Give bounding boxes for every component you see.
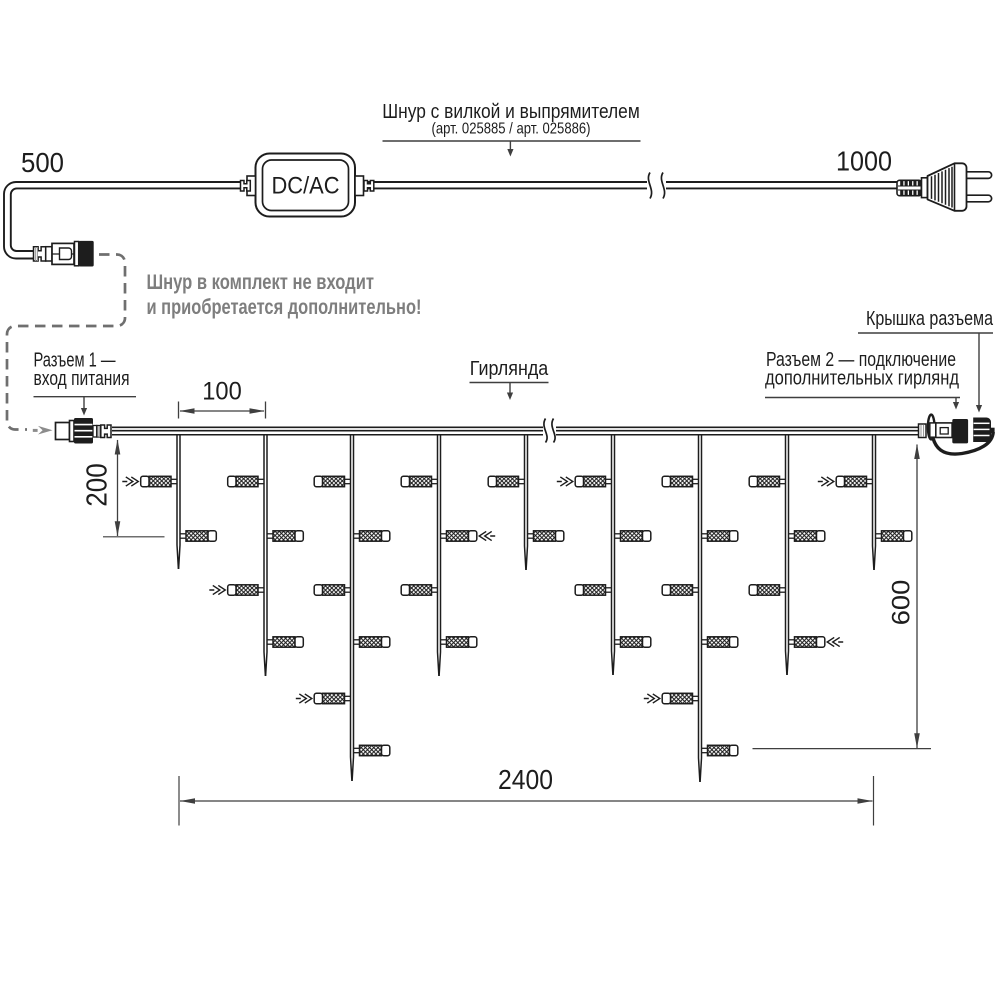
svg-text:100: 100 (202, 378, 242, 406)
svg-text:DC/AC: DC/AC (272, 173, 340, 200)
svg-text:вход питания: вход питания (34, 367, 130, 390)
svg-text:(арт. 025885 / арт. 025886): (арт. 025885 / арт. 025886) (432, 121, 591, 138)
svg-text:500: 500 (21, 147, 64, 178)
svg-text:600: 600 (888, 580, 916, 626)
svg-text:Гирлянда: Гирлянда (470, 357, 549, 380)
svg-text:2400: 2400 (498, 764, 553, 795)
svg-text:Шнур в комплект не входит: Шнур в комплект не входит (147, 271, 375, 294)
svg-text:200: 200 (82, 463, 114, 507)
svg-text:1000: 1000 (836, 146, 892, 177)
svg-text:дополнительных гирлянд: дополнительных гирлянд (765, 367, 959, 390)
svg-text:и приобретается дополнительно!: и приобретается дополнительно! (147, 296, 422, 319)
svg-text:Крышка разъема: Крышка разъема (866, 307, 993, 330)
